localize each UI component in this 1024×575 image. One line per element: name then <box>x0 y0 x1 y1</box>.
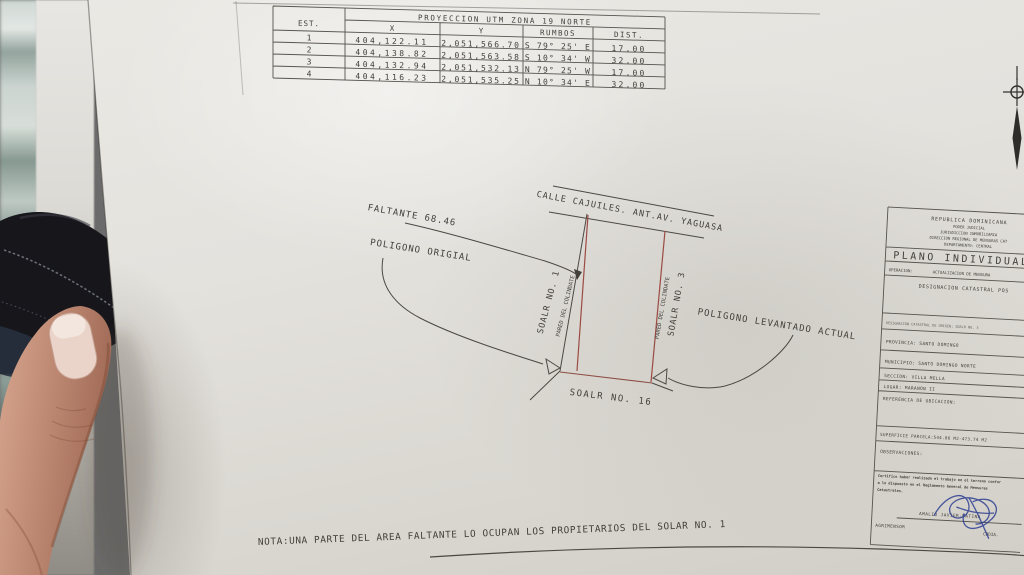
table-col-rumbos: RUMBOS <box>540 28 576 38</box>
table-cell: 404,138.82 <box>355 48 428 59</box>
original-leader <box>382 258 543 364</box>
solar16-label: SOALR NO. 16 <box>569 388 653 408</box>
table-col-y: Y <box>479 26 484 35</box>
tb-municipio: MUNICIPIO: SANTO DOMINGO NORTE <box>885 359 977 370</box>
table-cell: 404,116.23 <box>355 72 428 83</box>
table-cell: 32.00 <box>611 80 646 90</box>
tb-designacion-posicional: DESIGNACION CATASTRAL POS <box>919 284 1009 295</box>
tb-surveyor-title: AGRIMENSOR <box>875 523 905 531</box>
table-cell: 2,051,532.13 <box>441 63 520 74</box>
table-cell: 17.00 <box>611 44 646 54</box>
poligono-levantado-label: POLIGONO LEVANTADO ACTUAL <box>697 307 857 342</box>
tb-operacion-value: ACTUALIZACION DE MENSURA <box>933 269 992 277</box>
corner-extension-line <box>530 371 560 400</box>
table-cell: 1 <box>307 33 312 42</box>
table-cell: 32.00 <box>611 56 646 66</box>
table-cell: 2 <box>307 45 312 54</box>
tb-operacion-label: OPERACION: <box>889 267 913 273</box>
levantado-leader <box>668 335 793 388</box>
bottom-note: NOTA:UNA PARTE DEL AREA FALTANTE LO OCUP… <box>258 519 726 548</box>
table-cell: 404,132.94 <box>355 60 428 71</box>
bottom-boundary-line <box>560 372 652 383</box>
tb-referencia: REFERENCIA DE UBICACION: <box>883 396 956 406</box>
tb-cert3: Catastrales. <box>877 488 903 493</box>
table-cell: 3 <box>307 57 312 66</box>
bottom-boundary-extension <box>652 383 673 391</box>
table-cell: 2,051,563.58 <box>441 51 520 62</box>
table-cell: S 10° 34' W <box>525 53 591 64</box>
corner-arrow-right-icon <box>653 369 667 384</box>
tb-superficie: SUPERFICIE PARCELA:544.06 M2-473.74 M2 <box>880 432 987 443</box>
table-col-est: EST. <box>298 19 320 29</box>
sheet-frame-bottom <box>430 547 1024 562</box>
poligono-original-label: POLIGONO ORIGIAL <box>369 238 472 264</box>
hand-thumb <box>0 293 170 575</box>
corner-arrow-left-icon <box>546 359 560 374</box>
photo-of-survey-plan: PROYECCION UTM ZONA 19 NORTE EST. X Y RU… <box>0 0 1024 575</box>
table-cell: 404,122.11 <box>355 36 428 47</box>
north-arrow-icon <box>1003 66 1024 170</box>
tb-surveyor-org: CODIA. <box>983 531 999 538</box>
table-cell: 17.00 <box>611 68 646 78</box>
table-cell: N 79° 25' W <box>525 65 591 76</box>
street-label: CALLE CAJUILES. ANT.AV. YAGUASA <box>536 190 724 234</box>
table-cell: 2,051,566.70 <box>441 39 520 50</box>
coordinate-table: PROYECCION UTM ZONA 19 NORTE EST. X Y RU… <box>273 6 665 90</box>
parcel-drawing: CALLE CAJUILES. ANT.AV. YAGUASA FALTANTE… <box>367 186 857 408</box>
sheet-frame-top <box>233 3 820 14</box>
table-col-dist: DIST. <box>614 30 644 40</box>
table-cell: 4 <box>307 69 312 78</box>
tb-designacion-origen: DESIGNACION CATASTRAL DE ORIGEN: SOALR N… <box>886 321 979 330</box>
title-block: REPUBLICA DOMINICANA PODER JUDICIAL JURI… <box>870 207 1024 552</box>
sheet-frame-left <box>236 1 243 95</box>
table-cell: S 79° 25' E <box>525 41 591 52</box>
table-cell: 2,051,535.25 <box>441 75 520 86</box>
table-cell: N 10° 34' E <box>525 77 591 88</box>
table-col-x: X <box>390 24 395 33</box>
tb-observaciones: OBSERVACIONES: <box>880 449 923 457</box>
tb-provincia: PROVINCIA: SANTO DOMINGO <box>886 339 959 349</box>
